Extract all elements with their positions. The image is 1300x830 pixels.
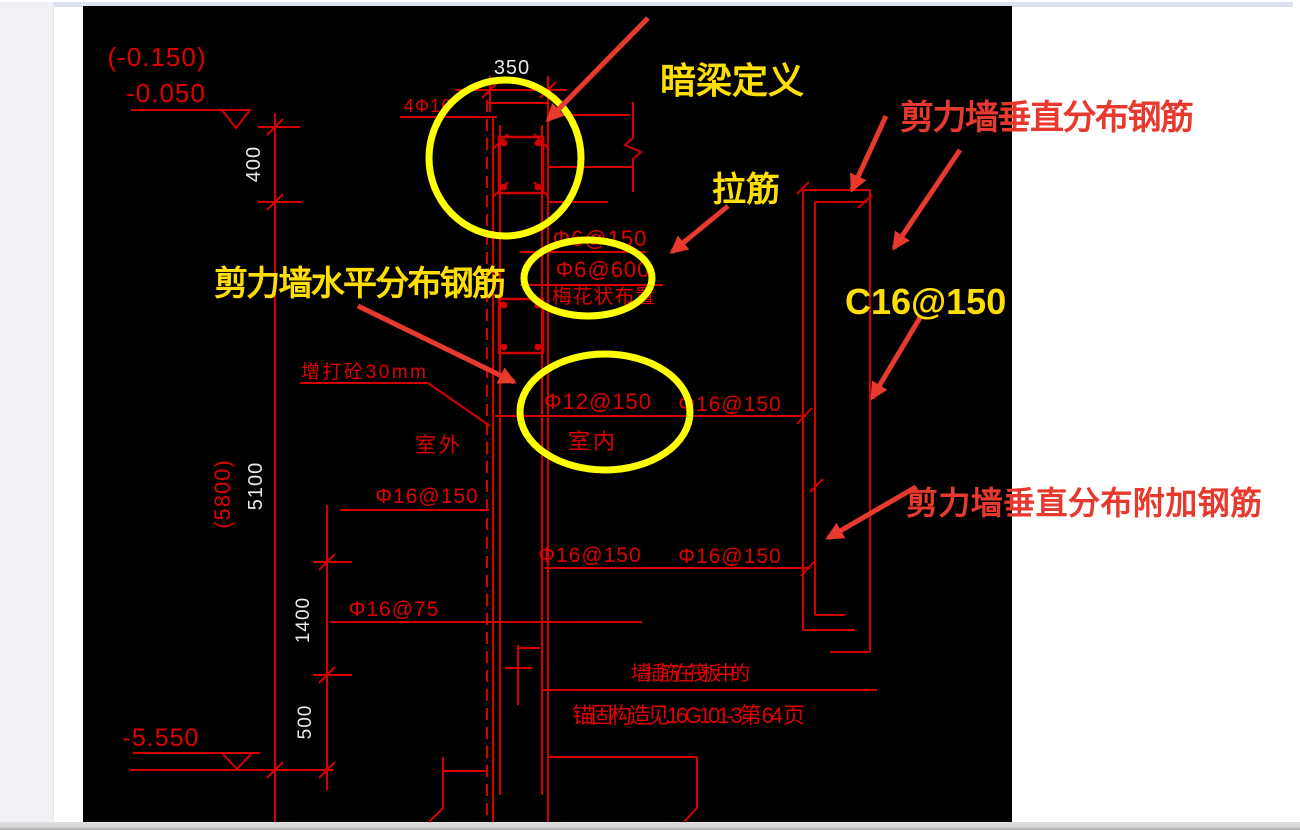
dark-beam-annotation: 暗梁定义 bbox=[660, 60, 804, 101]
vertical-rebar-annotation: 剪力墙垂直分布钢筋 bbox=[900, 99, 1194, 137]
additional-rebar-annotation: 剪力墙垂直分布附加钢筋 bbox=[906, 485, 1262, 521]
dim-5800: (5800) bbox=[210, 459, 235, 529]
dim-400: 400 bbox=[243, 146, 265, 182]
cad-viewport: (-0.150) -0.050 -5.550 350 400 5100 (580… bbox=[0, 0, 1300, 830]
dim-1400: 1400 bbox=[293, 597, 314, 643]
vert-left-low-label: Φ16@75 bbox=[349, 598, 440, 621]
anchor-note-line2: 锚固构造见16G101-3第 64 页 bbox=[572, 703, 806, 728]
vert-right-top-label: Φ16@150 bbox=[678, 393, 781, 416]
indoor-label: 室内 bbox=[568, 429, 616, 454]
vert-left-label: Φ16@150 bbox=[375, 485, 478, 508]
dim-5100: 5100 bbox=[245, 462, 267, 511]
tie-annotation: 拉筋 bbox=[712, 171, 780, 209]
tie-600-label: Φ6@600 bbox=[556, 257, 651, 282]
horizontal-rebar-annotation: 剪力墙水平分布钢筋 bbox=[214, 265, 506, 303]
level-top-bracket: (-0.150) bbox=[107, 42, 206, 72]
concrete-note-label: 增打砼30mm bbox=[301, 361, 427, 383]
level-bottom: -5.550 bbox=[123, 724, 200, 752]
application-window: (-0.150) -0.050 -5.550 350 400 5100 (580… bbox=[0, 0, 1300, 830]
level-top: -0.050 bbox=[126, 78, 206, 108]
dim-350: 350 bbox=[494, 57, 530, 79]
vert-mid-label: Φ16@150 bbox=[538, 544, 641, 567]
wall-horizontal-label: Φ12@150 bbox=[544, 389, 652, 414]
anchor-note-line1: 墙插筋在筏板中的 bbox=[631, 662, 751, 685]
rebar-spec-annotation: C16@150 bbox=[845, 281, 1006, 322]
vert-right-label: Φ16@150 bbox=[678, 545, 781, 568]
dim-500: 500 bbox=[295, 705, 316, 740]
